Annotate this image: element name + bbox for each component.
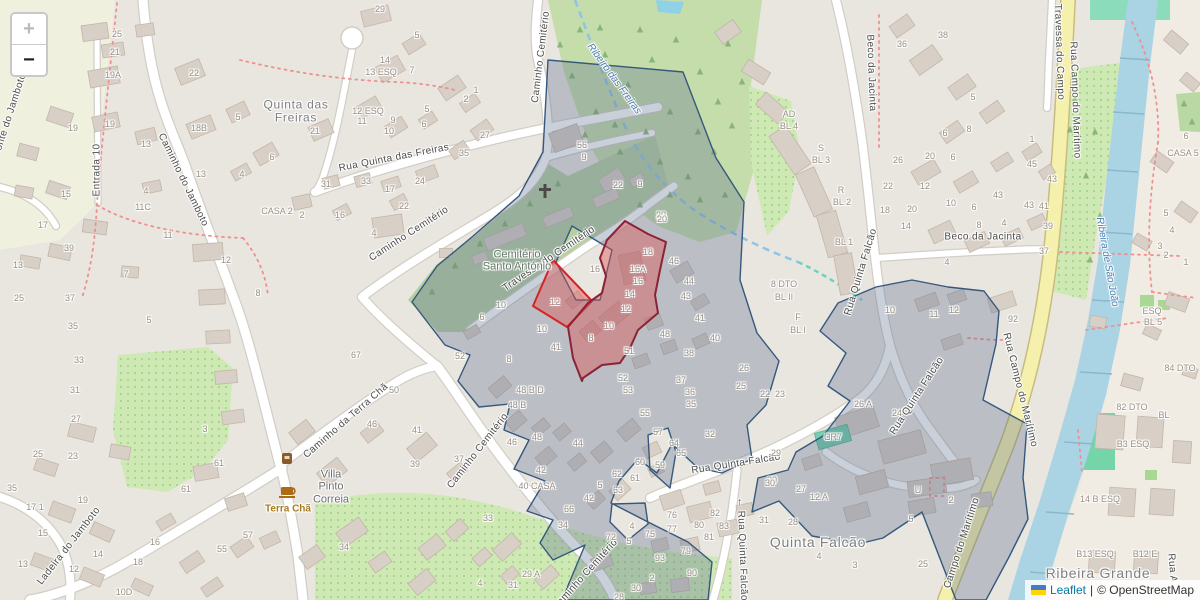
poi-icon (282, 453, 292, 464)
cafe-icon (279, 487, 295, 498)
zoom-out-button[interactable]: − (12, 45, 46, 75)
green-topright (1176, 92, 1200, 132)
zoom-in-button[interactable]: + (12, 14, 46, 45)
attribution-bar: Leaflet | © OpenStreetMap (1025, 580, 1200, 600)
zoom-control: + − (10, 12, 48, 77)
ukraine-flag-icon (1031, 585, 1046, 595)
swimming-pool (656, 0, 684, 14)
leaflet-link[interactable]: Leaflet (1050, 583, 1086, 597)
openstreetmap-link[interactable]: © OpenStreetMap (1097, 583, 1194, 597)
map-tiles (0, 0, 1200, 600)
map-canvas[interactable]: Fonte do JambotoEntrada 10Caminho do Jam… (0, 0, 1200, 600)
attribution-separator: | (1090, 583, 1093, 597)
